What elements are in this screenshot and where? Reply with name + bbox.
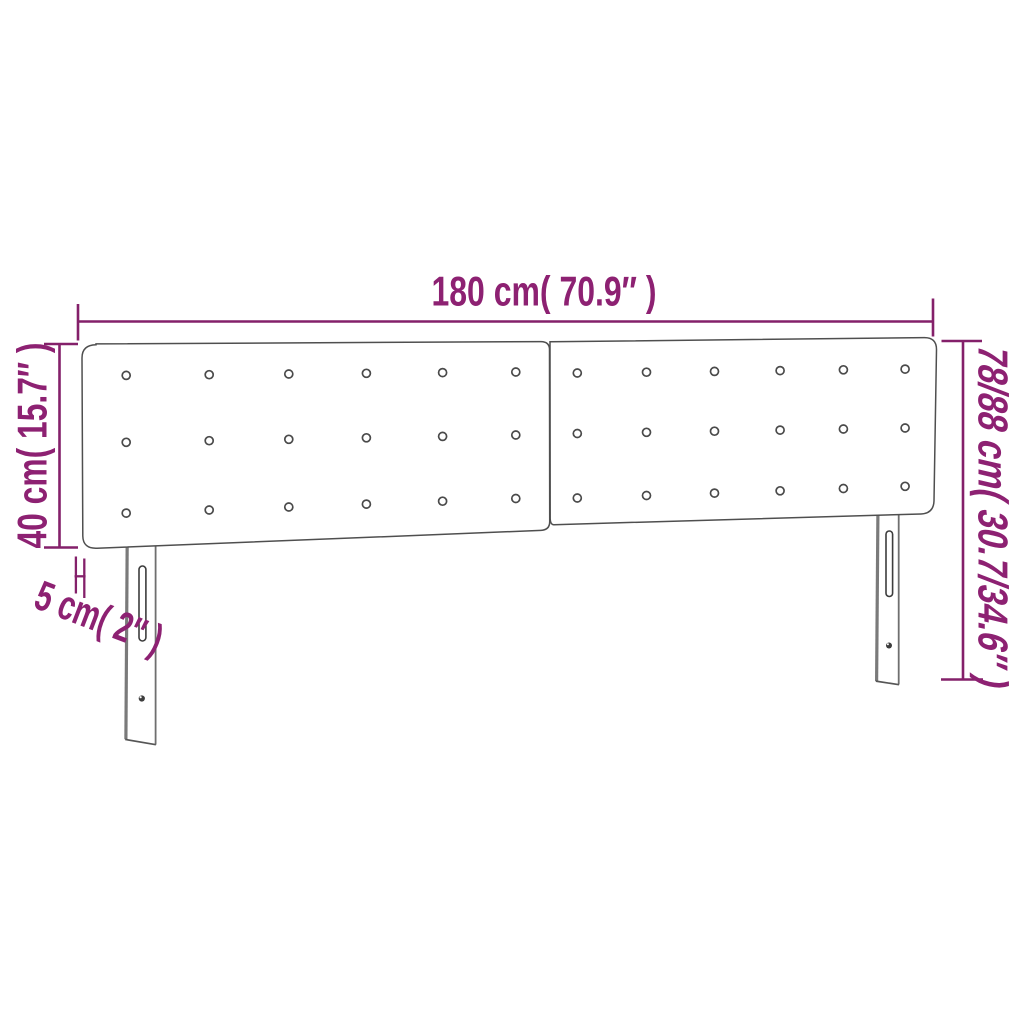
svg-text:78/88 cm( 30.7/34.6″ ): 78/88 cm( 30.7/34.6″ ) bbox=[969, 341, 1016, 694]
svg-text:180 cm( 70.9″ ): 180 cm( 70.9″ ) bbox=[432, 268, 657, 315]
svg-text:40 cm( 15.7″ ): 40 cm( 15.7″ ) bbox=[9, 343, 56, 549]
